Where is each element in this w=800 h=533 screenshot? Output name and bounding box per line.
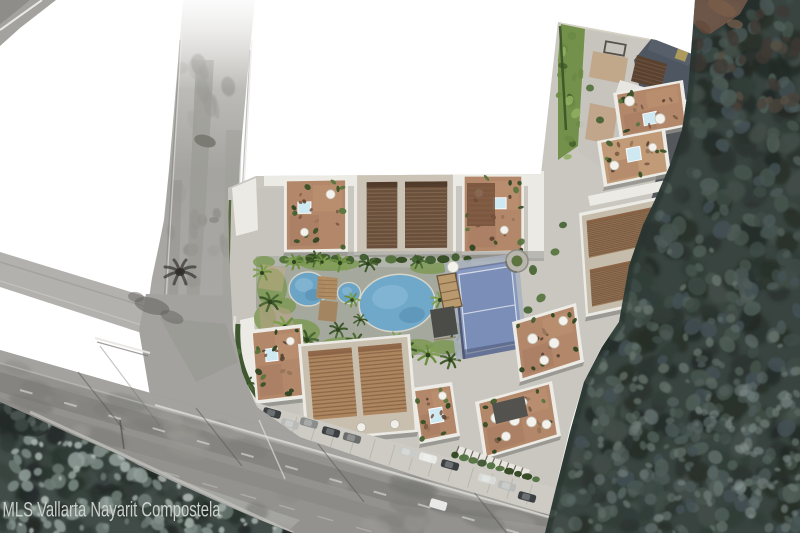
svg-text:MLS Vallarta Nayarit Compostel: MLS Vallarta Nayarit Compostela [3,499,221,522]
